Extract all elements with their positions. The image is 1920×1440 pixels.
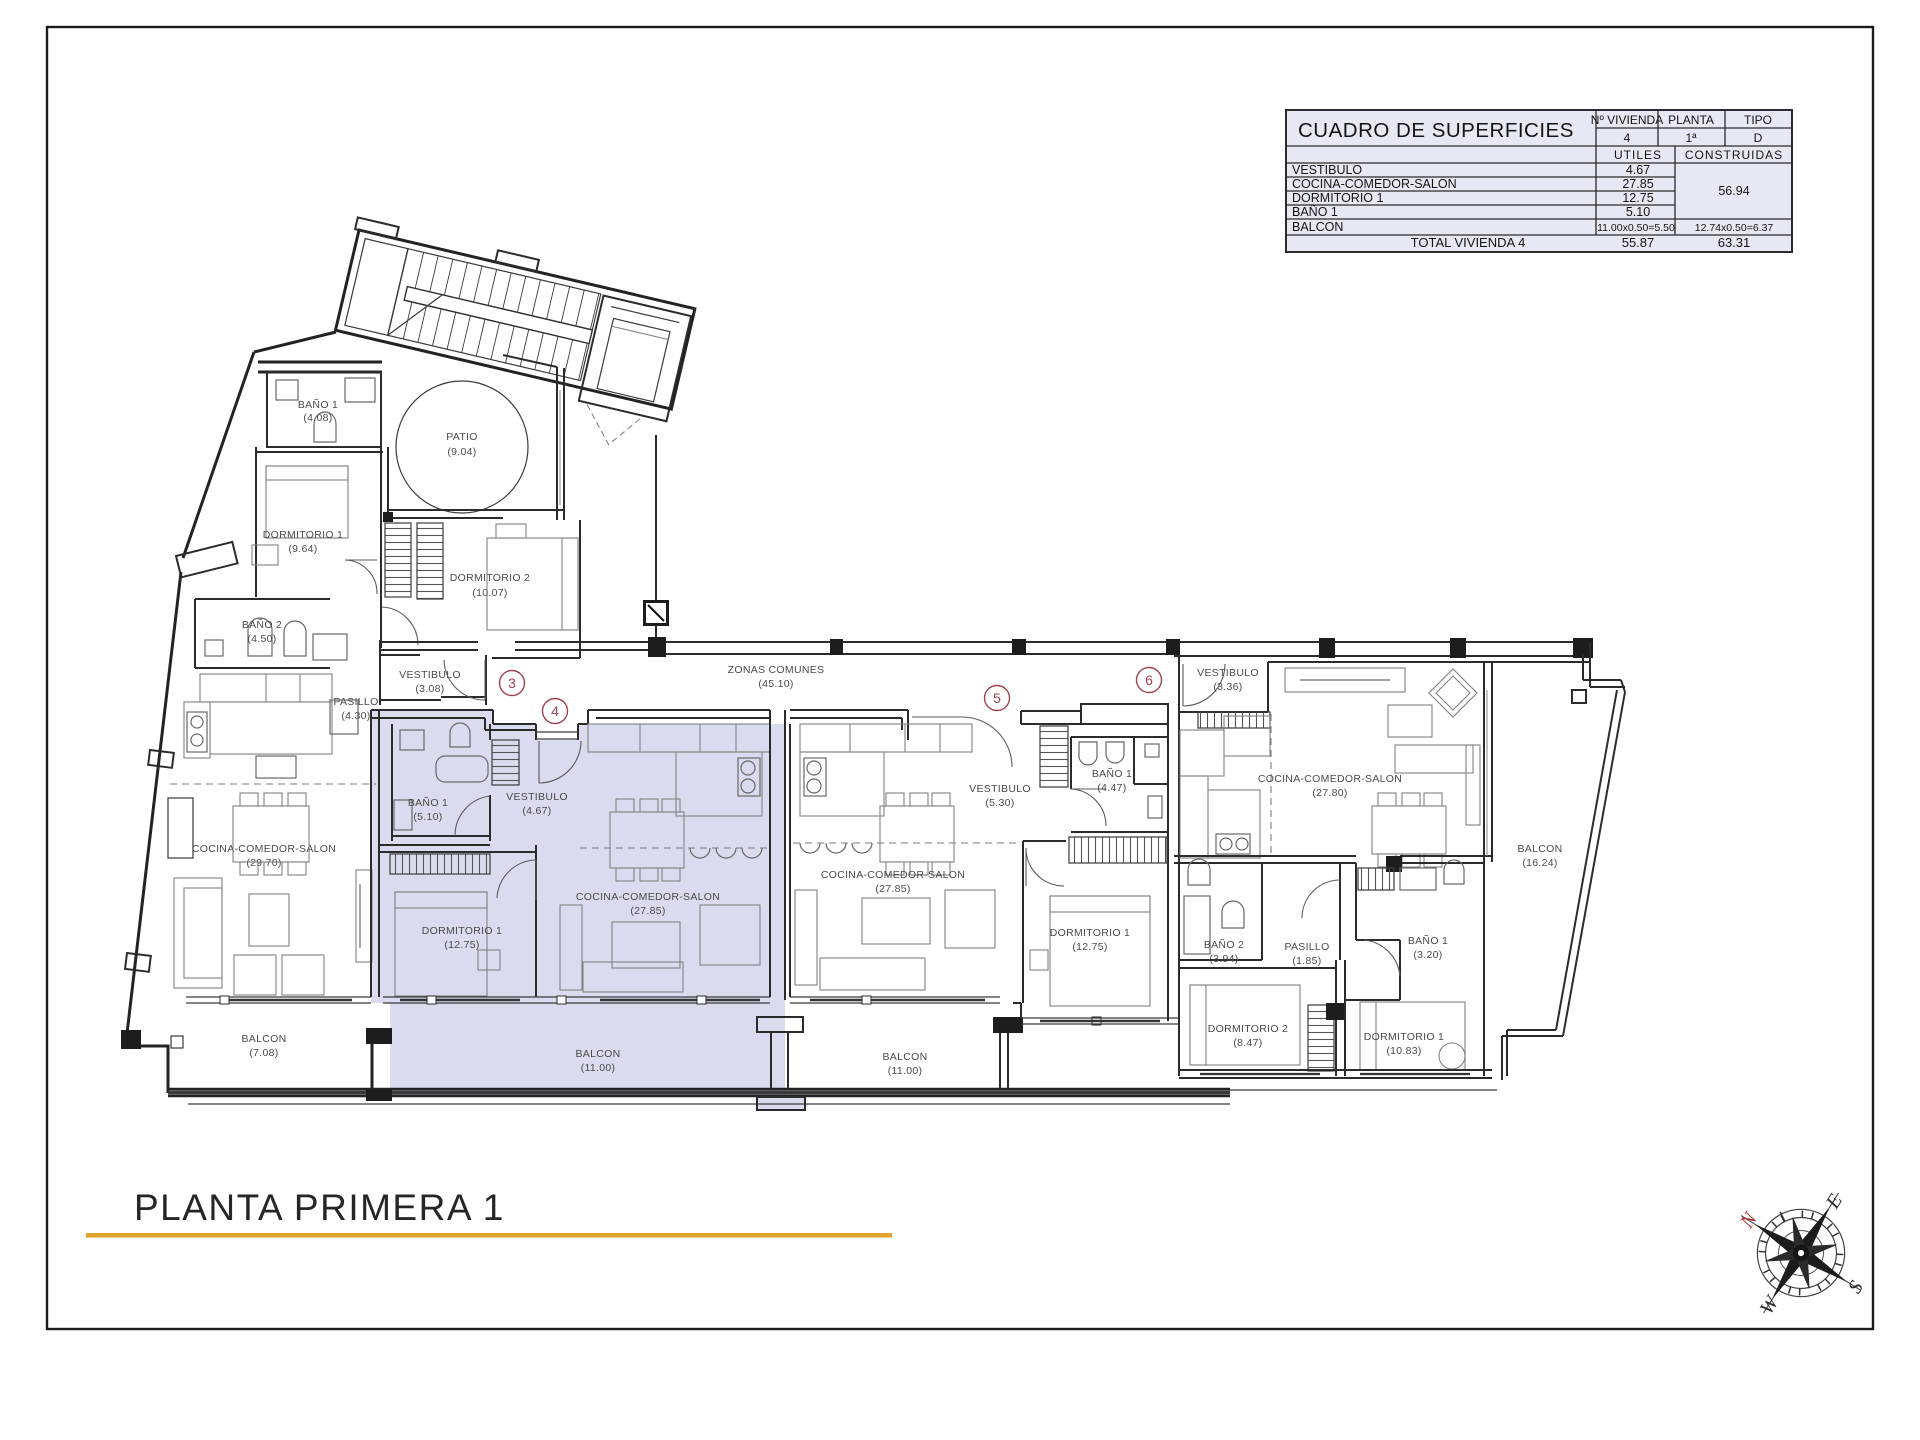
svg-text:(12.75): (12.75) (1072, 941, 1107, 953)
svg-text:TOTAL VIVIENDA 4: TOTAL VIVIENDA 4 (1411, 235, 1526, 250)
svg-text:12.74x0.50=6.37: 12.74x0.50=6.37 (1695, 222, 1774, 234)
svg-text:BAÑO 1: BAÑO 1 (408, 796, 448, 809)
svg-text:PASILLO: PASILLO (1284, 941, 1329, 953)
svg-text:CONSTRUIDAS: CONSTRUIDAS (1685, 148, 1783, 162)
svg-text:56.94: 56.94 (1718, 184, 1749, 198)
svg-text:BAÑO 1: BAÑO 1 (1292, 205, 1338, 219)
svg-text:(12.75): (12.75) (444, 939, 479, 951)
svg-text:(16.24): (16.24) (1522, 857, 1557, 869)
svg-text:4: 4 (551, 703, 559, 719)
svg-text:5: 5 (993, 690, 1001, 706)
svg-text:DORMITORIO 1: DORMITORIO 1 (1292, 191, 1383, 205)
svg-text:6: 6 (1145, 672, 1153, 688)
svg-text:(45.10): (45.10) (758, 678, 793, 690)
svg-text:DORMITORIO 1: DORMITORIO 1 (422, 925, 502, 937)
svg-text:BAÑO 1: BAÑO 1 (298, 398, 338, 411)
svg-text:11.00x0.50=5.50: 11.00x0.50=5.50 (1597, 222, 1675, 234)
svg-text:(3.08): (3.08) (415, 683, 444, 695)
svg-text:(5.30): (5.30) (985, 797, 1014, 809)
svg-text:VESTIBULO: VESTIBULO (506, 791, 568, 803)
svg-text:1ª: 1ª (1685, 131, 1697, 145)
svg-text:COCINA-COMEDOR-SALON: COCINA-COMEDOR-SALON (821, 869, 965, 881)
svg-text:PLANTA: PLANTA (1668, 113, 1714, 127)
svg-text:BALCON: BALCON (242, 1033, 287, 1045)
svg-text:BALCON: BALCON (576, 1048, 621, 1060)
svg-text:(27.85): (27.85) (875, 883, 910, 895)
svg-text:(5.10): (5.10) (413, 811, 442, 823)
svg-text:UTILES: UTILES (1614, 148, 1662, 162)
svg-text:BAÑO 2: BAÑO 2 (242, 618, 282, 631)
svg-text:(11.00): (11.00) (888, 1065, 923, 1077)
svg-text:(3.20): (3.20) (1413, 949, 1442, 961)
svg-text:DORMITORIO 1: DORMITORIO 1 (1364, 1031, 1444, 1043)
svg-text:5.10: 5.10 (1626, 205, 1650, 219)
svg-text:12.75: 12.75 (1622, 191, 1653, 205)
svg-text:DORMITORIO 1: DORMITORIO 1 (263, 529, 343, 541)
svg-text:CUADRO DE SUPERFICIES: CUADRO DE SUPERFICIES (1298, 119, 1574, 142)
svg-text:(7.08): (7.08) (249, 1047, 278, 1059)
svg-text:3: 3 (508, 675, 516, 691)
svg-text:(4.08): (4.08) (303, 412, 332, 424)
svg-text:63.31: 63.31 (1718, 235, 1751, 250)
svg-text:D: D (1754, 131, 1763, 145)
svg-text:(10.83): (10.83) (1386, 1045, 1421, 1057)
svg-text:(27.80): (27.80) (1312, 787, 1347, 799)
svg-text:(27.85): (27.85) (630, 905, 665, 917)
svg-text:55.87: 55.87 (1622, 235, 1655, 250)
svg-text:(11.00): (11.00) (581, 1062, 616, 1074)
svg-text:DORMITORIO 2: DORMITORIO 2 (450, 572, 530, 584)
svg-text:TIPO: TIPO (1744, 113, 1772, 127)
svg-text:(3.94): (3.94) (1209, 953, 1238, 965)
svg-text:BALCON: BALCON (883, 1051, 928, 1063)
svg-text:(4.30): (4.30) (341, 710, 370, 722)
svg-text:BALCON: BALCON (1292, 220, 1343, 234)
svg-text:VESTIBULO: VESTIBULO (1292, 163, 1362, 177)
svg-text:COCINA-COMEDOR-SALON: COCINA-COMEDOR-SALON (192, 843, 336, 855)
svg-text:(10.07): (10.07) (472, 587, 507, 599)
svg-text:(4.50): (4.50) (247, 633, 276, 645)
svg-text:(4.67): (4.67) (522, 805, 551, 817)
svg-text:PATIO: PATIO (446, 431, 477, 443)
svg-text:(3.36): (3.36) (1213, 681, 1242, 693)
svg-text:(4.47): (4.47) (1097, 782, 1126, 794)
svg-text:ZONAS COMUNES: ZONAS COMUNES (728, 664, 825, 676)
svg-text:DORMITORIO 1: DORMITORIO 1 (1050, 927, 1130, 939)
svg-text:4: 4 (1624, 131, 1631, 145)
svg-text:BAÑO 2: BAÑO 2 (1204, 938, 1244, 951)
svg-text:(9.64): (9.64) (288, 543, 317, 555)
svg-text:4.67: 4.67 (1626, 163, 1650, 177)
svg-text:COCINA-COMEDOR-SALON: COCINA-COMEDOR-SALON (1292, 177, 1457, 191)
svg-text:Nº VIVIENDA: Nº VIVIENDA (1591, 113, 1663, 127)
svg-text:VESTIBULO: VESTIBULO (969, 783, 1031, 795)
svg-text:PASILLO: PASILLO (333, 696, 378, 708)
svg-text:27.85: 27.85 (1622, 177, 1653, 191)
svg-text:COCINA-COMEDOR-SALON: COCINA-COMEDOR-SALON (576, 891, 720, 903)
svg-text:BAÑO 1: BAÑO 1 (1408, 934, 1448, 947)
svg-text:VESTIBULO: VESTIBULO (399, 669, 461, 681)
svg-text:BALCON: BALCON (1518, 843, 1563, 855)
svg-text:BAÑO 1: BAÑO 1 (1092, 767, 1132, 780)
svg-text:COCINA-COMEDOR-SALON: COCINA-COMEDOR-SALON (1258, 773, 1402, 785)
svg-text:(9.04): (9.04) (447, 446, 476, 458)
svg-text:VESTIBULO: VESTIBULO (1197, 667, 1259, 679)
svg-text:PLANTA PRIMERA 1: PLANTA PRIMERA 1 (134, 1187, 505, 1228)
svg-text:(1.85): (1.85) (1292, 955, 1321, 967)
svg-text:(8.47): (8.47) (1233, 1037, 1262, 1049)
svg-text:DORMITORIO 2: DORMITORIO 2 (1208, 1023, 1288, 1035)
